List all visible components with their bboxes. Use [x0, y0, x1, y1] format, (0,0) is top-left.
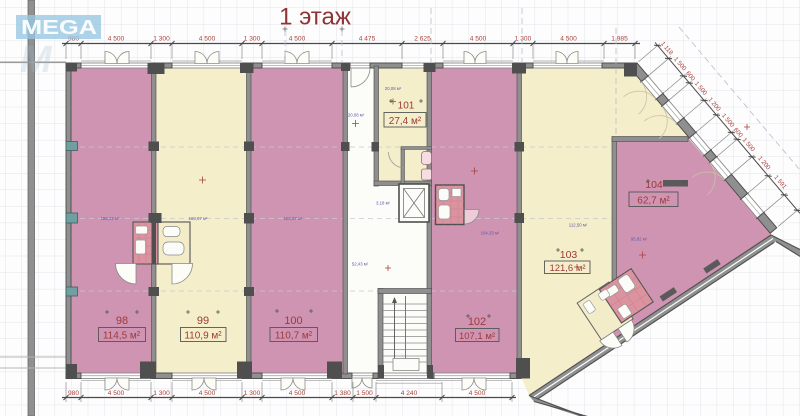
svg-text:104,33 м²: 104,33 м²: [481, 231, 500, 236]
svg-text:102: 102: [468, 316, 486, 328]
svg-text:1 300: 1 300: [515, 36, 532, 43]
svg-text:4 500: 4 500: [199, 390, 216, 397]
svg-text:1 300: 1 300: [244, 36, 261, 43]
svg-text:103: 103: [560, 249, 578, 261]
svg-text:95,82 м²: 95,82 м²: [631, 237, 648, 242]
svg-text:4 500: 4 500: [199, 36, 216, 43]
svg-text:101: 101: [398, 101, 415, 112]
svg-text:1 300: 1 300: [244, 390, 261, 397]
svg-text:110,9 м²: 110,9 м²: [184, 331, 222, 342]
svg-text:52,43 м²: 52,43 м²: [352, 262, 369, 267]
svg-text:110,7 м²: 110,7 м²: [275, 331, 313, 342]
svg-text:114,5 м²: 114,5 м²: [103, 331, 141, 342]
svg-text:1 300: 1 300: [153, 36, 170, 43]
svg-text:4 500: 4 500: [289, 36, 306, 43]
svg-text:2 625: 2 625: [414, 36, 431, 43]
svg-text:62,7 м²: 62,7 м²: [637, 196, 670, 207]
svg-text:20,08 м²: 20,08 м²: [385, 86, 402, 91]
svg-text:4 475: 4 475: [359, 36, 376, 43]
svg-text:1 985: 1 985: [611, 36, 628, 43]
svg-text:168,07 м²: 168,07 м²: [189, 216, 208, 221]
svg-text:20,08 м²: 20,08 м²: [348, 113, 365, 118]
svg-text:980: 980: [68, 390, 79, 397]
svg-text:4 500: 4 500: [289, 390, 306, 397]
svg-text:1 380: 1 380: [334, 390, 351, 397]
svg-text:4 500: 4 500: [469, 390, 486, 397]
svg-text:98: 98: [116, 315, 128, 327]
svg-text:99: 99: [197, 315, 209, 327]
svg-text:100: 100: [284, 315, 302, 327]
svg-text:121,6 м²: 121,6 м²: [549, 263, 585, 274]
svg-text:M: M: [20, 39, 53, 81]
svg-text:MEGA: MEGA: [21, 17, 97, 39]
svg-text:1 300: 1 300: [153, 390, 170, 397]
svg-text:4 500: 4 500: [470, 36, 487, 43]
svg-text:1 500: 1 500: [356, 390, 373, 397]
svg-text:107,1 м²: 107,1 м²: [459, 331, 495, 342]
svg-text:158,07 м²: 158,07 м²: [284, 216, 303, 221]
svg-text:4 500: 4 500: [560, 36, 577, 43]
svg-text:112,50 м²: 112,50 м²: [569, 223, 588, 228]
svg-text:3,18 м²: 3,18 м²: [376, 201, 391, 206]
svg-text:4 500: 4 500: [108, 390, 125, 397]
svg-text:158,22 м²: 158,22 м²: [101, 216, 120, 221]
svg-text:27,4 м²: 27,4 м²: [389, 116, 422, 127]
svg-text:4 500: 4 500: [108, 36, 125, 43]
svg-text:4 240: 4 240: [401, 390, 418, 397]
svg-text:1 этаж: 1 этаж: [279, 4, 351, 31]
